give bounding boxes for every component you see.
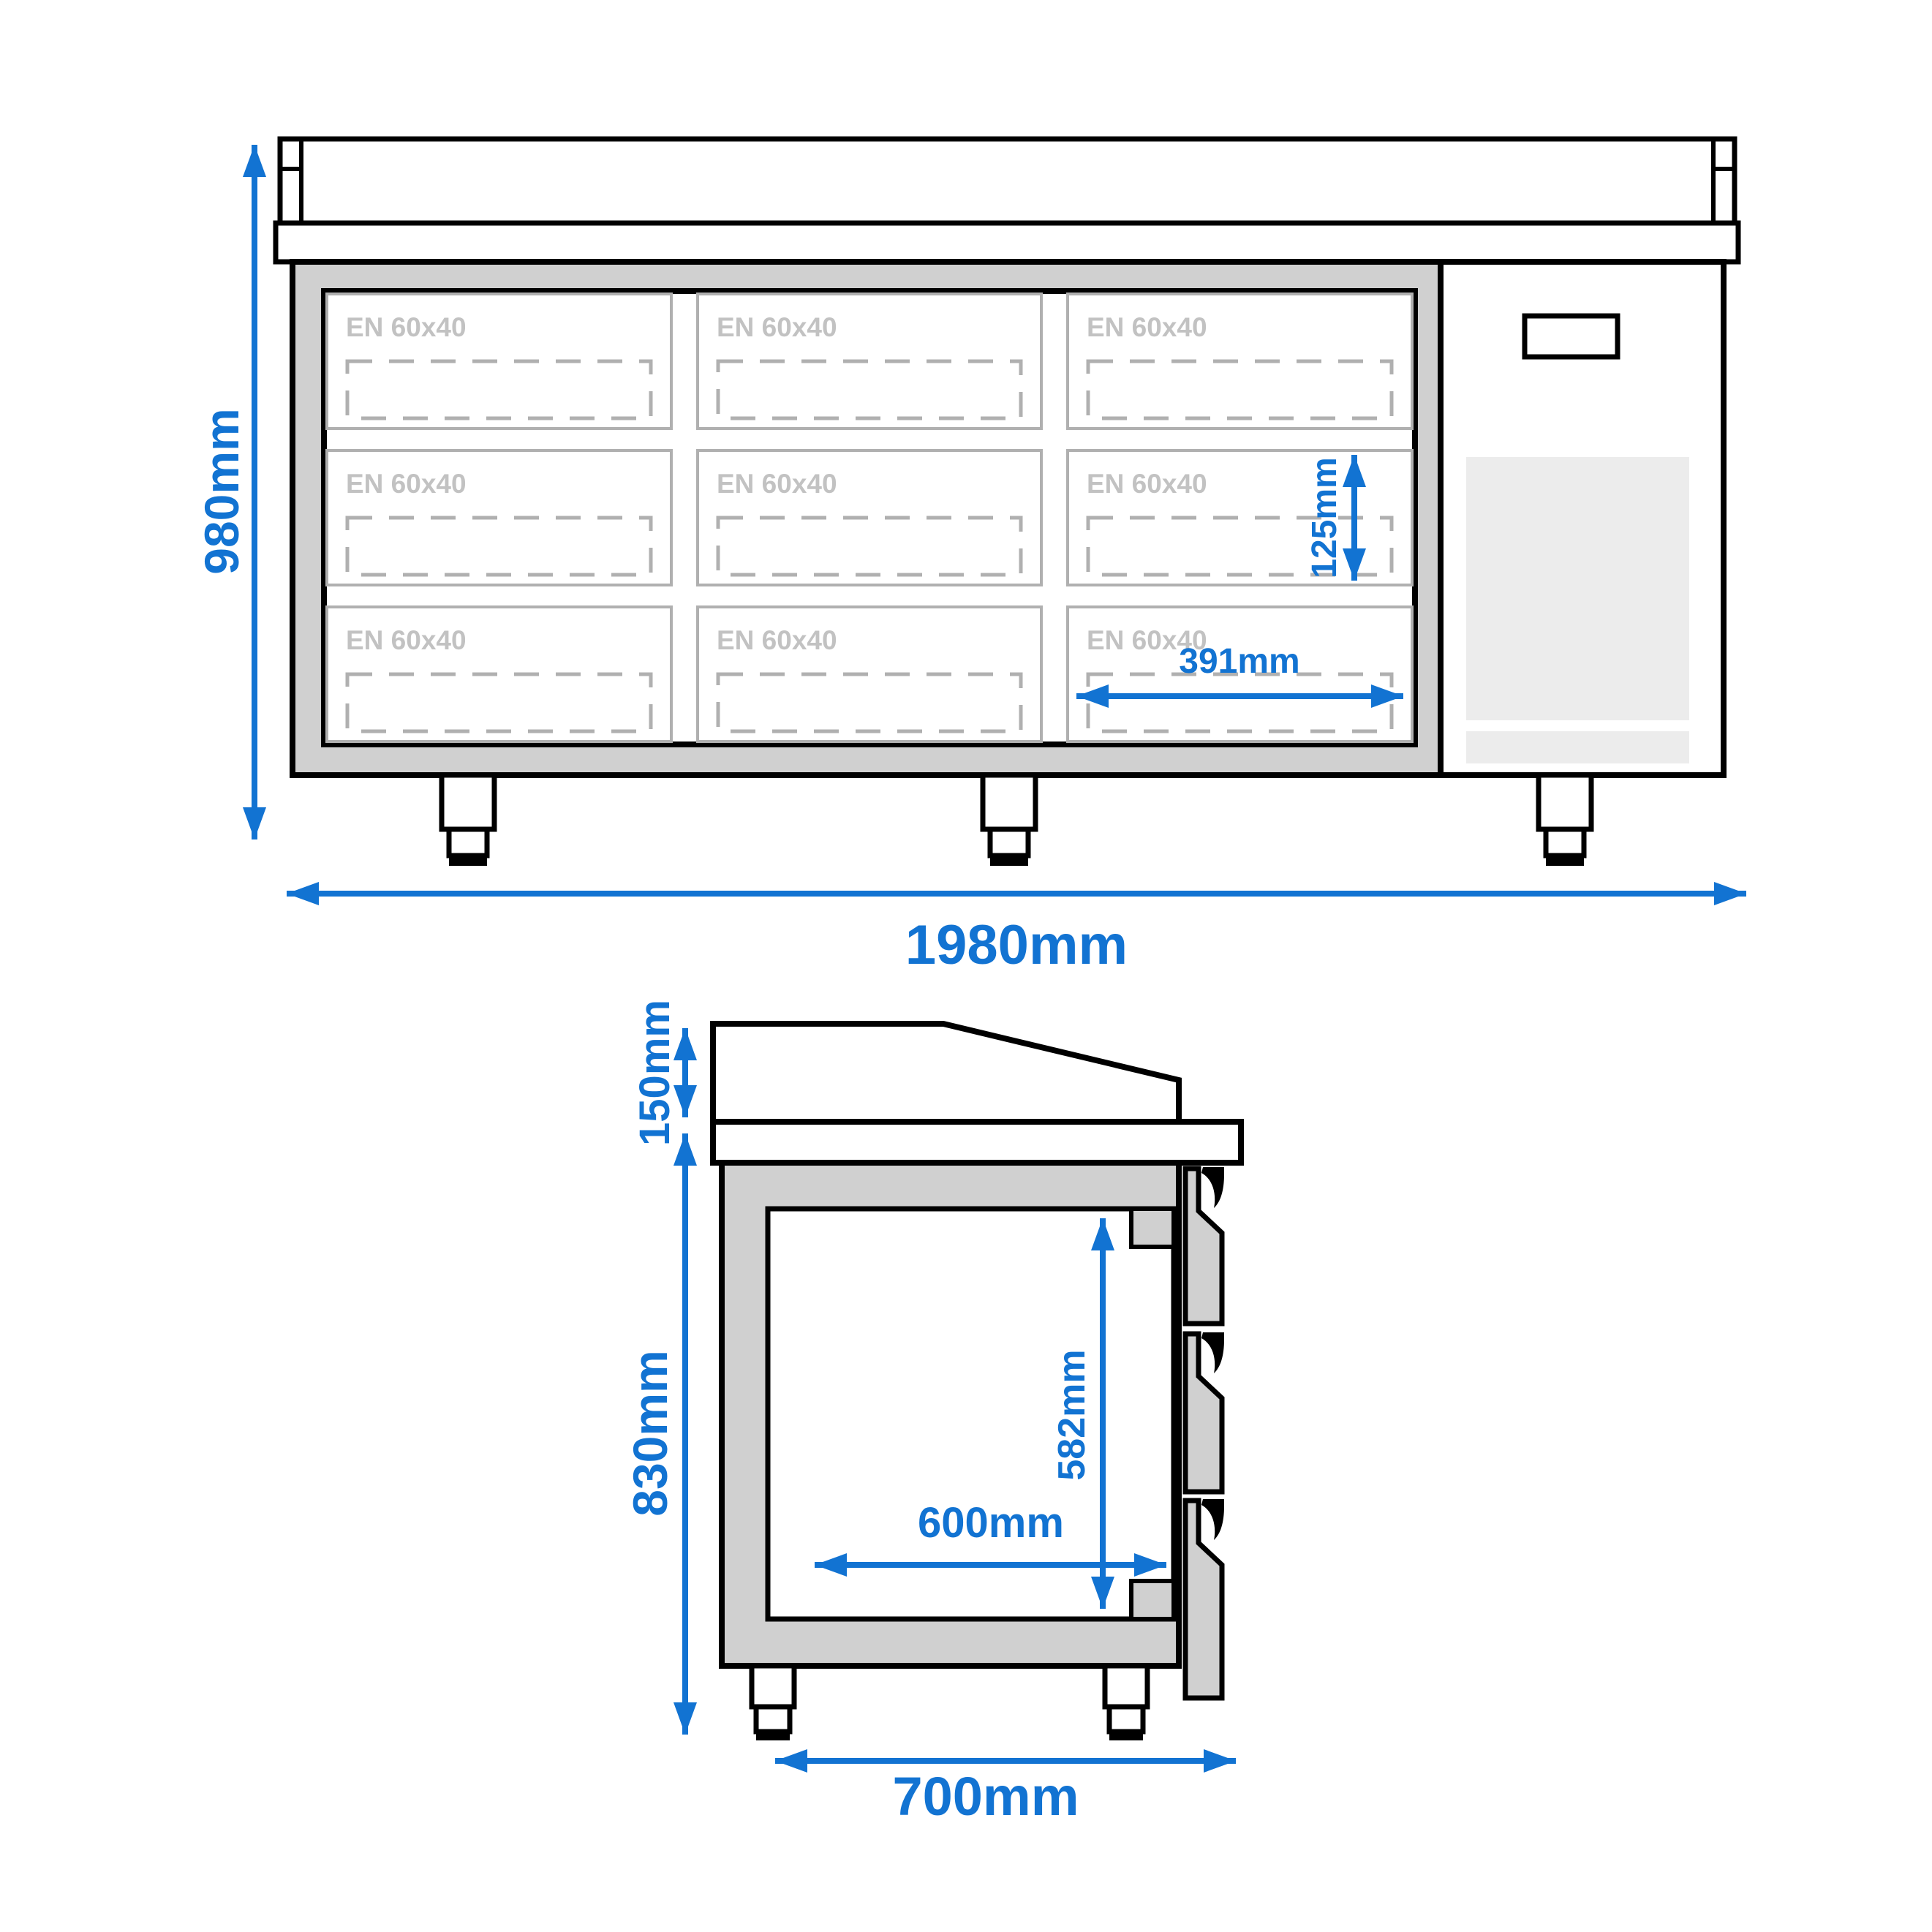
compartment-label: EN 60x40: [346, 312, 467, 342]
side-carcass: [722, 1163, 1179, 1666]
side-leg-left: [752, 1666, 794, 1740]
drawer-front-1: [1185, 1167, 1224, 1324]
drawer-handle-hook: [1201, 1499, 1224, 1540]
cavity-step-top: [1131, 1209, 1174, 1247]
cavity-step-bottom: [1131, 1581, 1174, 1619]
leg-foot-base: [990, 856, 1028, 866]
leg-shaft: [752, 1666, 794, 1707]
dimension-label-1980: 1980mm: [905, 914, 1128, 976]
compartment-r1c3: EN 60x40: [1068, 294, 1412, 429]
dimension-label-582: 582mm: [1051, 1349, 1093, 1480]
technical-drawing-canvas: 980mm EN 60x40: [0, 0, 1932, 1932]
side-legs: [752, 1666, 1147, 1740]
compartment-label: EN 60x40: [1087, 469, 1207, 499]
leg-foot-base: [1109, 1732, 1143, 1740]
leg-shaft: [442, 775, 494, 829]
compartment-label: EN 60x40: [717, 469, 837, 499]
compartment-r1c1: EN 60x40: [327, 294, 671, 429]
worktop: [276, 223, 1738, 262]
side-worktop: [713, 1122, 1241, 1163]
compartment-r2c3: EN 60x40: [1068, 450, 1412, 585]
drawer-front-3: [1185, 1499, 1224, 1698]
drawing-page: 980mm EN 60x40: [0, 0, 1932, 1932]
dimension-overall-height: 980mm: [195, 145, 254, 839]
compartment-label: EN 60x40: [717, 625, 837, 655]
dimension-label-150: 150mm: [631, 1000, 679, 1146]
front-view: 980mm EN 60x40: [195, 139, 1746, 976]
dimension-label-600: 600mm: [918, 1499, 1064, 1547]
leg-foot: [1546, 829, 1584, 856]
upstand-body: [280, 139, 1735, 223]
leg-foot: [1109, 1707, 1143, 1732]
dimension-upstand-height: 150mm: [631, 1000, 685, 1146]
side-view: 150mm 830mm 582mm 600mm: [623, 1000, 1241, 1827]
drawer-handle-hook: [1201, 1332, 1224, 1373]
drawer-fronts: [1185, 1167, 1224, 1698]
side-upstand: [713, 1024, 1179, 1122]
compartment-r2c1: EN 60x40: [327, 450, 671, 585]
compartment-r3c1: EN 60x40: [327, 607, 671, 742]
leg-right: [1539, 775, 1591, 866]
leg-foot: [449, 829, 487, 856]
vent-grille-lower: [1466, 731, 1689, 763]
leg-foot: [990, 829, 1028, 856]
leg-foot: [756, 1707, 790, 1732]
leg-foot-base: [756, 1732, 790, 1740]
upstand: [280, 139, 1735, 223]
leg-shaft: [1105, 1666, 1147, 1707]
compartment-label: EN 60x40: [1087, 312, 1207, 342]
dimension-label-830: 830mm: [623, 1350, 677, 1517]
dimension-label-700: 700mm: [892, 1766, 1079, 1827]
leg-shaft: [983, 775, 1035, 829]
control-display: [1525, 316, 1618, 357]
dimension-overall-depth: 700mm: [775, 1761, 1236, 1827]
dimension-label-391: 391mm: [1179, 642, 1299, 681]
vent-grille: [1466, 457, 1689, 720]
compartment-label: EN 60x40: [346, 469, 467, 499]
compartment-r3c2: EN 60x40: [698, 607, 1041, 742]
drawer-front-2: [1185, 1332, 1224, 1492]
leg-center: [983, 775, 1035, 866]
leg-left: [442, 775, 494, 866]
dimension-label-125: 125mm: [1305, 457, 1344, 578]
drawer-handle-hook: [1201, 1167, 1224, 1208]
dimension-overall-width: 1980mm: [287, 894, 1746, 976]
dimension-label-980: 980mm: [195, 408, 249, 575]
compartment-label: EN 60x40: [346, 625, 467, 655]
inner-cavity: [768, 1209, 1174, 1619]
front-legs: [442, 775, 1591, 866]
side-leg-right: [1105, 1666, 1147, 1740]
dimension-body-height: 830mm: [623, 1133, 685, 1735]
compartment-label: EN 60x40: [717, 312, 837, 342]
leg-foot-base: [449, 856, 487, 866]
leg-shaft: [1539, 775, 1591, 829]
compartment-r1c2: EN 60x40: [698, 294, 1041, 429]
leg-foot-base: [1546, 856, 1584, 866]
compartment-r2c2: EN 60x40: [698, 450, 1041, 585]
cabinet-body: EN 60x40 EN 60x40 EN 60x40 EN 60x40: [293, 262, 1724, 775]
